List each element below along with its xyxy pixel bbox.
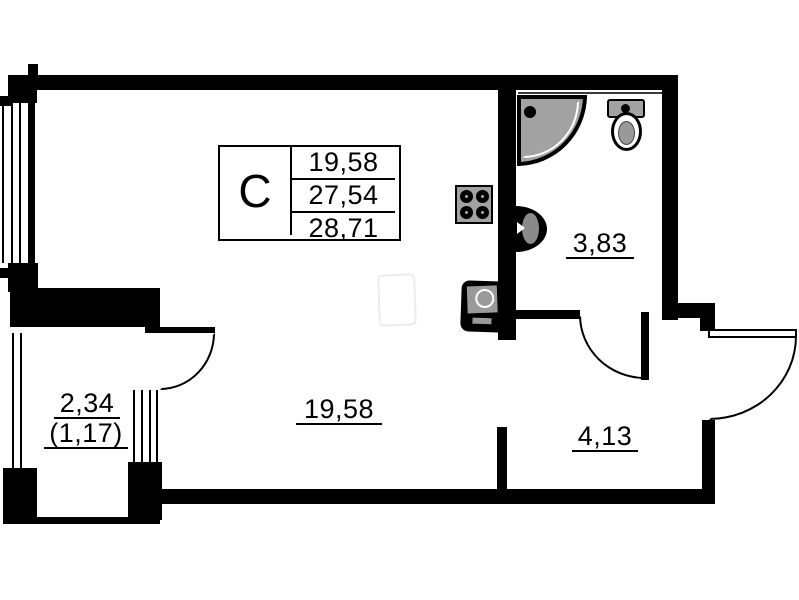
unit-area-apartment: 27,54 [292,178,395,211]
bathroom-inner-face-line [518,92,662,94]
wall-right [662,75,678,320]
balcony-window-line [133,390,135,462]
unit-area-living: 19,58 [292,147,395,178]
window-frame-line [19,103,21,263]
balcony-reduced-area-label: (1,17) [44,419,128,449]
washing-machine-icon [460,280,508,333]
wall-tick-left-lower [0,268,12,278]
bathroom-door-swing-arc [579,315,645,379]
hall-area-label: 4,13 [572,422,638,452]
unit-info-box: С 19,58 27,54 28,71 [218,145,401,241]
balcony-pillar-left [3,468,37,523]
washer-control-strip [472,318,491,325]
toilet-bowl-inner [618,121,635,145]
burner-dot [481,195,484,198]
window-sill-bar [28,103,35,263]
window-frame-line [11,103,13,263]
wall-bathroom-bottom [498,310,580,319]
wall-right-jog [678,303,715,318]
burner-dot [465,195,468,198]
unit-areas-table: 19,58 27,54 28,71 [292,147,395,235]
wall-top-left-corner [8,75,37,103]
sink-faucet-icon [517,222,525,234]
wall-interior-lower [497,427,507,489]
balcony-glazing-line [20,333,22,468]
shower-drain-icon [524,106,536,118]
stove-icon [455,185,493,224]
balcony-pillar-right [128,462,162,520]
wall-tick-top [28,64,38,77]
unit-type-letter: С [220,147,290,235]
window-frame-line [2,103,4,263]
balcony-window-line [141,390,143,462]
burner-dot [481,211,484,214]
burner-dot [465,211,468,214]
wall-bottom [140,489,715,504]
wall-top [8,75,678,90]
balcony-area-label: 2,34 [54,389,120,419]
balcony-door-swing-arc [160,333,215,390]
balcony-window-line [156,390,158,462]
unit-area-total: 28,71 [292,211,395,244]
floor-plan: С 19,58 27,54 28,71 19,58 3,83 4,13 2,34… [0,0,799,600]
bathroom-area-label: 3,83 [566,229,634,259]
balcony-glazing-line [12,333,14,468]
living-room-area-label: 19,58 [296,395,382,425]
entry-door-swing-arc [709,336,797,420]
ghost-furniture-outline [377,273,417,326]
wall-balcony-partition [10,288,160,327]
balcony-window-line [149,390,151,462]
